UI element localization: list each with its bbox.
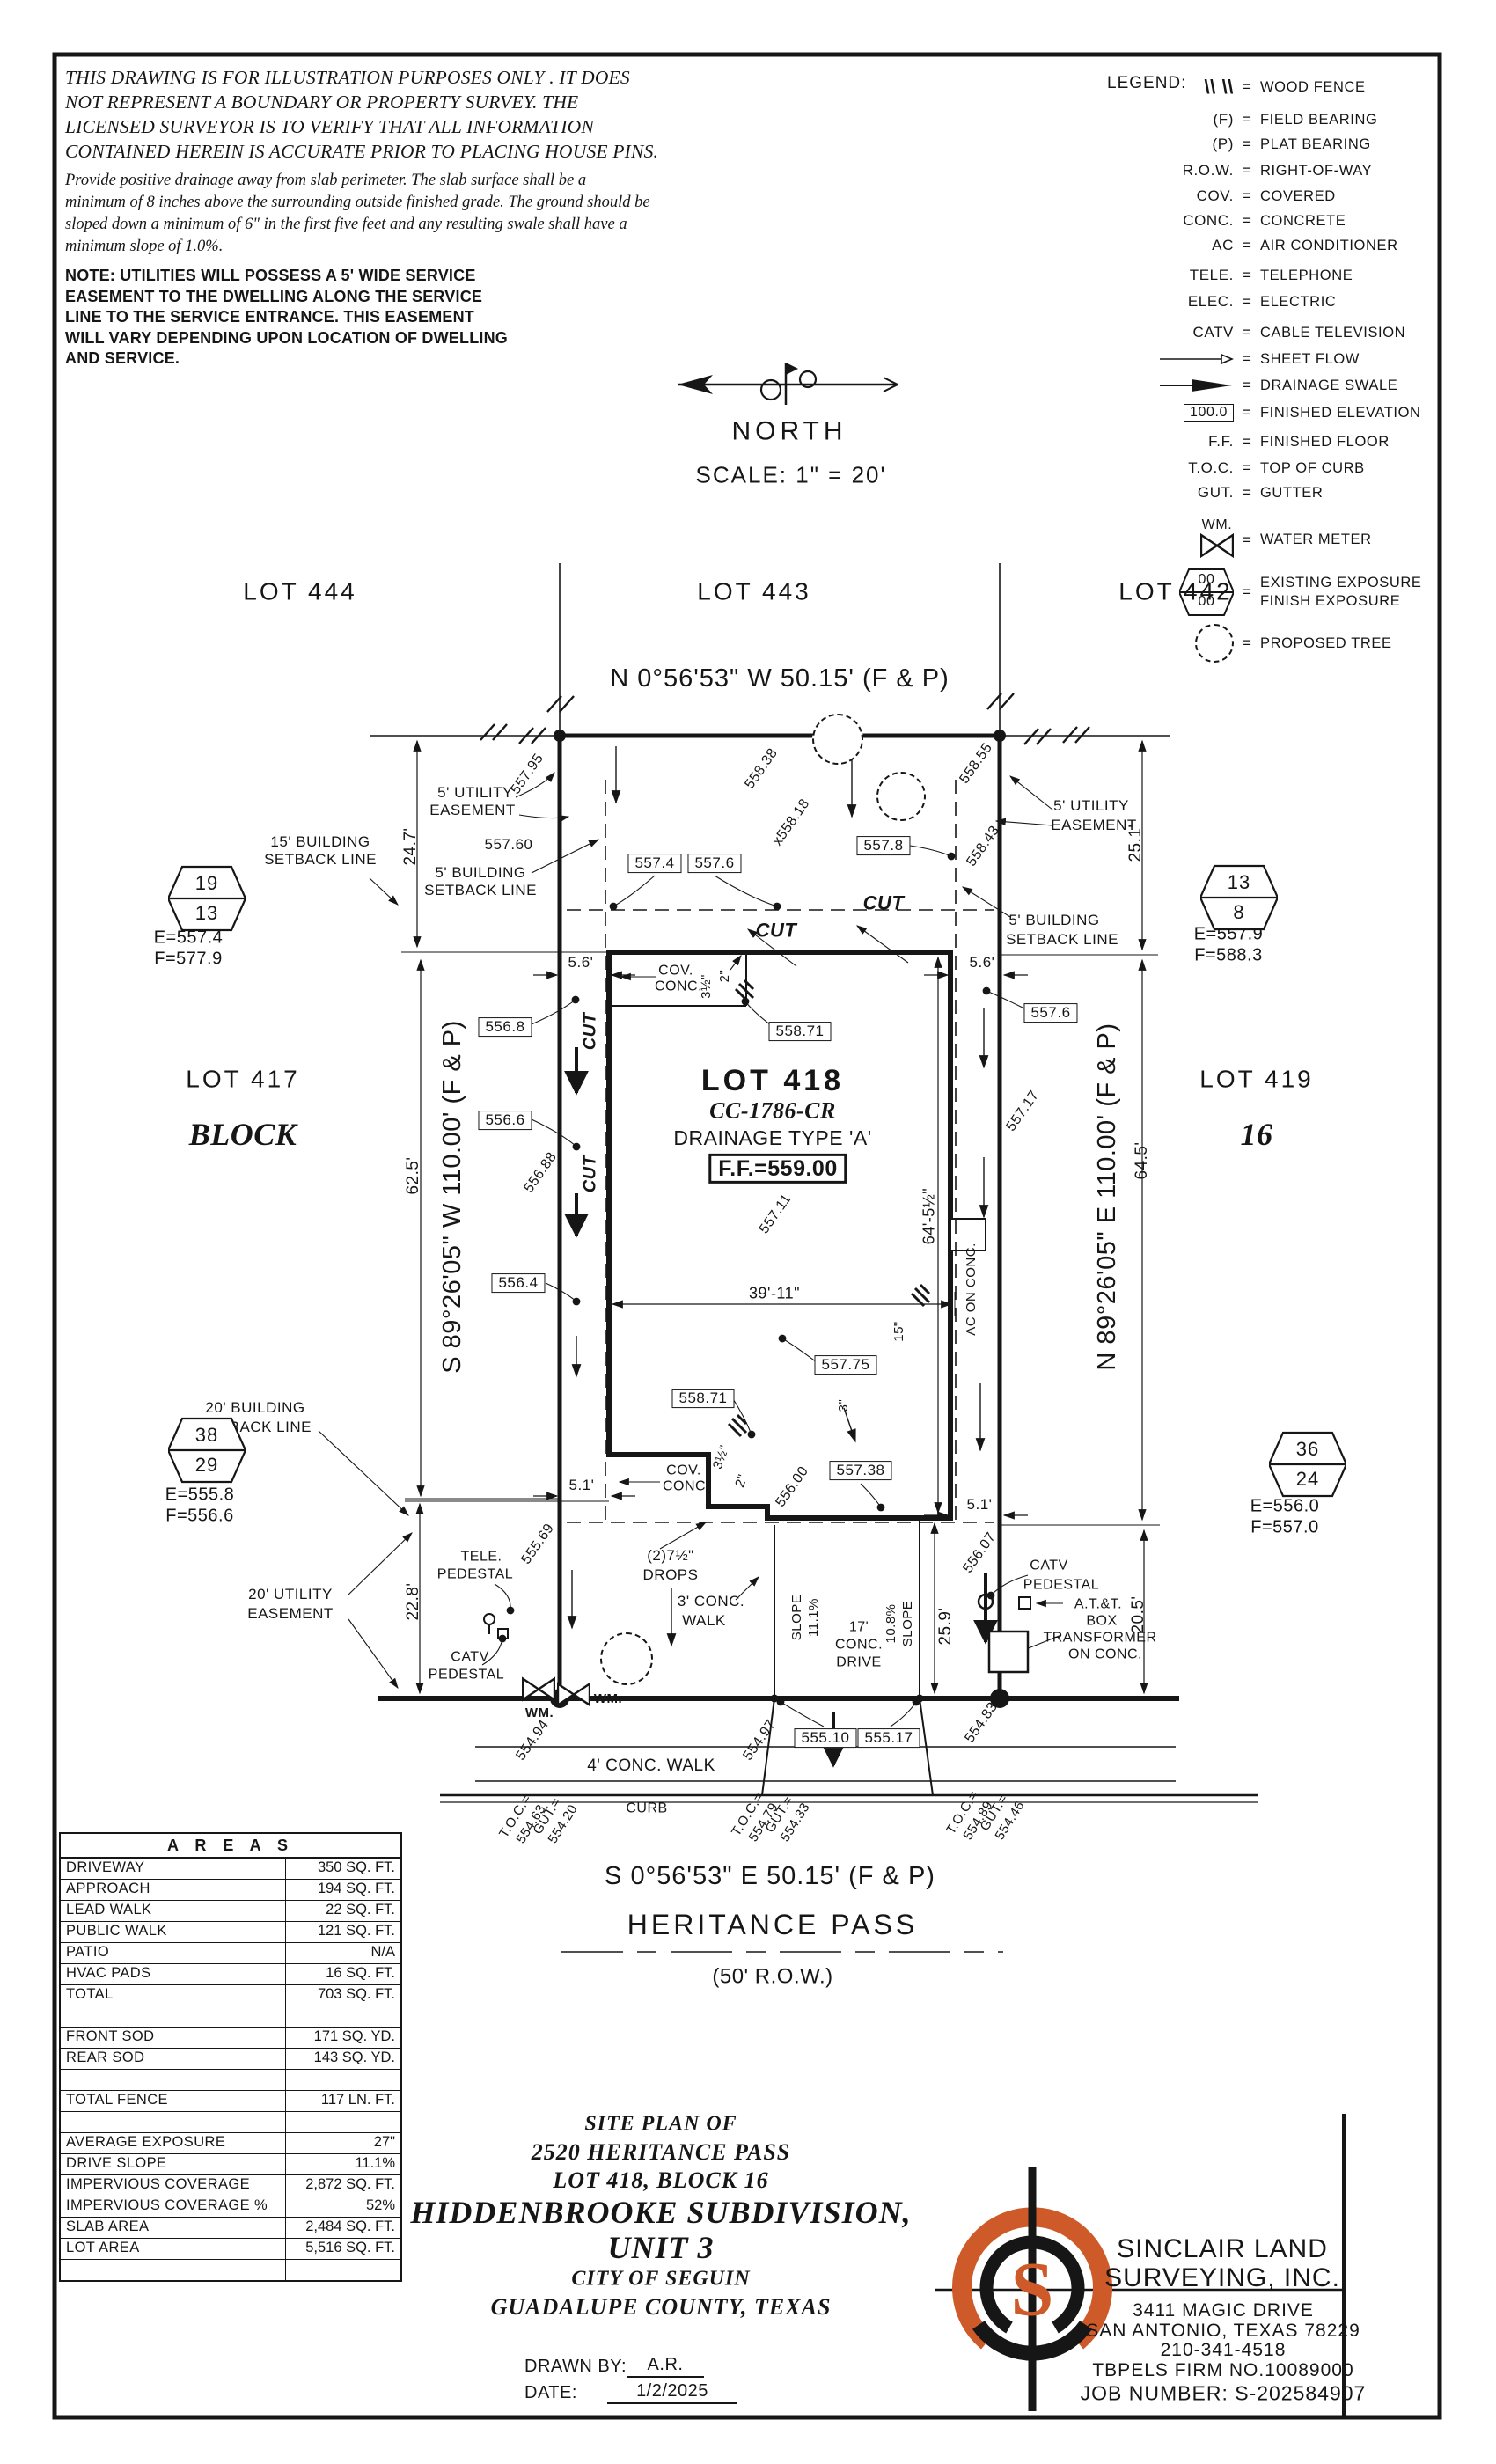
- plan-label: 22.8': [405, 1582, 422, 1620]
- legend-row: R.O.W.=RIGHT-OF-WAY: [1102, 162, 1447, 180]
- legend-equals: =: [1234, 634, 1260, 652]
- proposed-tree-icon: [1102, 624, 1234, 663]
- legend-equals: =: [1234, 237, 1260, 254]
- plan-label: SLOPE: [901, 1601, 915, 1647]
- areas-row-label: LEAD WALK: [61, 1901, 285, 1921]
- areas-table-title: A R E A S: [61, 1834, 400, 1859]
- disclaimer-line: minimum slope of 1.0%.: [65, 236, 658, 258]
- plan-label: (2)7½": [647, 1548, 693, 1564]
- legend-label: ELECTRIC: [1260, 293, 1447, 312]
- legend-symbol: (F): [1102, 111, 1234, 128]
- plan-label: WM.: [594, 1692, 622, 1706]
- lot-419-label: LOT 419: [1199, 1066, 1313, 1091]
- finished-elevation-icon: 100.0: [1102, 404, 1234, 422]
- date-value: 1/2/2025: [607, 2381, 737, 2404]
- plan-label: SLOPE: [790, 1595, 804, 1641]
- areas-table-row: [61, 2112, 400, 2133]
- legend-label: FINISHED ELEVATION: [1260, 404, 1447, 422]
- water-meter-icon: [557, 1683, 590, 1712]
- front-bearing-label: S 0°56'53" E 50.15' (F & P): [605, 1863, 935, 1889]
- north-arrow-icon: [678, 363, 898, 405]
- plan-label: PEDESTAL: [429, 1668, 504, 1683]
- proposed-tree-icon: [876, 772, 926, 821]
- legend-equals: =: [1234, 212, 1260, 230]
- legend-symbol: T.O.C.: [1102, 459, 1234, 477]
- legend-symbol: CATV: [1102, 324, 1234, 341]
- plan-label: CONC.: [655, 980, 702, 995]
- lot-417-label: LOT 417: [186, 1066, 299, 1091]
- disclaimer-line: LINE TO THE SERVICE ENTRANCE. THIS EASEM…: [65, 307, 658, 328]
- exposure-marker: 138: [1200, 864, 1278, 931]
- legend-symbol: TELE.: [1102, 267, 1234, 284]
- plan-label: SETBACK LINE: [264, 852, 377, 868]
- firm-tbpels: TBPELS FIRM NO.10089000: [1092, 2360, 1353, 2381]
- existing-exposure-value: 19: [168, 872, 246, 895]
- areas-row-value: 350 SQ. FT.: [285, 1859, 400, 1879]
- legend-equals: =: [1234, 484, 1260, 502]
- plan-label: 64.5': [1133, 1141, 1151, 1179]
- disclaimer-paragraph: THIS DRAWING IS FOR ILLUSTRATION PURPOSE…: [65, 65, 658, 164]
- drawn-by-label: DRAWN BY:: [524, 2357, 627, 2377]
- areas-row-label: [61, 2070, 285, 2090]
- plan-label: CONC.: [663, 1480, 710, 1495]
- plan-label: 557.4: [627, 854, 681, 873]
- plan-label: 5.1': [569, 1478, 595, 1493]
- areas-row-label: [61, 2260, 285, 2280]
- plan-label: 5.6': [970, 955, 995, 971]
- areas-row-label: LOT AREA: [61, 2239, 285, 2259]
- plan-label: 557.38: [830, 1461, 892, 1480]
- areas-row-label: PATIO: [61, 1943, 285, 1963]
- scale-label: SCALE: 1" = 20': [696, 463, 887, 487]
- legend-equals: =: [1234, 459, 1260, 477]
- legend-equals: =: [1234, 433, 1260, 451]
- legend-label: PLAT BEARING: [1260, 136, 1447, 154]
- exposure-marker: 3624: [1269, 1431, 1346, 1498]
- block-16-label: 16: [1241, 1118, 1273, 1152]
- public-walk-label: 4' CONC. WALK: [587, 1757, 715, 1775]
- title-block-line: 2520 HERITANCE PASS: [532, 2139, 791, 2166]
- lot-418-label: LOT 418: [701, 1066, 844, 1097]
- east-bearing-label: N 89°26'05" E 110.00' (F & P): [1094, 1023, 1120, 1370]
- plan-label: ON CONC.: [1068, 1648, 1142, 1663]
- drainage-note: Provide positive drainage away from slab…: [65, 170, 658, 258]
- plan-label: 2": [718, 970, 732, 983]
- site-plan-sheet: THIS DRAWING IS FOR ILLUSTRATION PURPOSE…: [0, 0, 1496, 2464]
- plan-label: E=556.0: [1250, 1498, 1320, 1516]
- plan-label: 20.5': [1130, 1595, 1148, 1633]
- plan-label: AC ON CONC.: [964, 1243, 979, 1336]
- title-block-line: LOT 418, BLOCK 16: [553, 2167, 768, 2194]
- legend-equals: =: [1234, 111, 1260, 128]
- plan-label: 11.1%: [807, 1598, 821, 1637]
- disclaimer-line: Provide positive drainage away from slab…: [65, 170, 658, 192]
- west-bearing-label: S 89°26'05" W 110.00' (F & P): [439, 1020, 466, 1374]
- areas-row-value: 121 SQ. FT.: [285, 1922, 400, 1942]
- legend-equals: =: [1234, 377, 1260, 394]
- legend-label: WOOD FENCE: [1260, 78, 1447, 97]
- areas-row-label: TOTAL FENCE: [61, 2091, 285, 2111]
- areas-table-row: IMPERVIOUS COVERAGE %52%: [61, 2196, 400, 2218]
- plan-label: SETBACK LINE: [424, 883, 537, 898]
- plan-label: DROPS: [643, 1567, 699, 1583]
- wood-fence-icon: \\ \\: [1102, 76, 1234, 99]
- legend-symbol: (P): [1102, 136, 1234, 153]
- legend-row: ELEC.=ELECTRIC: [1102, 293, 1447, 312]
- legend-symbol: ELEC.: [1102, 293, 1234, 311]
- legend-label: CABLE TELEVISION: [1260, 324, 1447, 342]
- plan-label: 5' BUILDING: [435, 865, 525, 881]
- plan-label: 5' BUILDING: [1008, 913, 1099, 928]
- areas-row-label: DRIVEWAY: [61, 1859, 285, 1879]
- plan-label: 15' BUILDING: [270, 834, 370, 850]
- plan-label: COV.: [666, 1464, 701, 1479]
- title-block-line: UNIT 3: [608, 2229, 715, 2266]
- legend-label: COVERED: [1260, 187, 1447, 206]
- legend-label: DRAINAGE SWALE: [1260, 377, 1447, 395]
- areas-row-label: AVERAGE EXPOSURE: [61, 2133, 285, 2153]
- legend-label: TOP OF CURB: [1260, 459, 1447, 478]
- title-block-line: SITE PLAN OF: [584, 2113, 737, 2137]
- plan-label: 5' UTILITY: [1053, 798, 1129, 814]
- areas-table-row: REAR SOD143 SQ. YD.: [61, 2049, 400, 2070]
- exposure-marker: 1913: [168, 865, 246, 932]
- water-meter-icon: WM.: [1102, 517, 1234, 562]
- areas-row-value: 143 SQ. YD.: [285, 2049, 400, 2069]
- legend-label: WATER METER: [1260, 531, 1447, 549]
- date-label: DATE:: [524, 2383, 577, 2403]
- areas-row-value: 117 LN. FT.: [285, 2091, 400, 2111]
- plan-label: 20' BUILDING: [205, 1400, 304, 1416]
- legend-row: TELE.=TELEPHONE: [1102, 267, 1447, 285]
- finish-exposure-value: 29: [168, 1454, 246, 1477]
- disclaimer-line: THIS DRAWING IS FOR ILLUSTRATION PURPOSE…: [65, 65, 658, 90]
- areas-table-row: APPROACH194 SQ. FT.: [61, 1880, 400, 1901]
- plan-label: CONC.: [835, 1639, 883, 1654]
- north-label: NORTH: [731, 417, 847, 445]
- finished-elevation-box: 100.0: [1184, 404, 1234, 422]
- plan-label: EASEMENT: [247, 1606, 334, 1622]
- areas-table-row: TOTAL703 SQ. FT.: [61, 1985, 400, 2006]
- plan-label: CUT: [582, 1155, 600, 1193]
- legend-equals: =: [1234, 293, 1260, 311]
- areas-row-value: 703 SQ. FT.: [285, 1985, 400, 2006]
- legend-row: AC=AIR CONDITIONER: [1102, 237, 1447, 255]
- legend-row: CATV=CABLE TELEVISION: [1102, 324, 1447, 342]
- areas-table-row: TOTAL FENCE117 LN. FT.: [61, 2091, 400, 2112]
- lot-444-label: LOT 444: [243, 578, 356, 604]
- existing-exposure-value: 36: [1269, 1438, 1346, 1461]
- proposed-tree-icon: [600, 1632, 653, 1685]
- areas-row-value: 5,516 SQ. FT.: [285, 2239, 400, 2259]
- plan-label: 25.1': [1127, 824, 1145, 862]
- firm-name-1: SINCLAIR LAND: [1117, 2234, 1328, 2264]
- rear-bearing-label: N 0°56'53" W 50.15' (F & P): [610, 665, 950, 692]
- drawn-by-value: A.R.: [627, 2355, 704, 2378]
- plan-label: TELE.: [461, 1551, 502, 1566]
- legend-row: CONC.=CONCRETE: [1102, 212, 1447, 231]
- legend-row: =DRAINAGE SWALE: [1102, 377, 1447, 395]
- areas-table-row: HVAC PADS16 SQ. FT.: [61, 1964, 400, 1985]
- legend-symbol: COV.: [1102, 187, 1234, 205]
- legend-label: AIR CONDITIONER: [1260, 237, 1447, 255]
- plan-label: 555.10: [795, 1728, 857, 1748]
- areas-table-row: IMPERVIOUS COVERAGE2,872 SQ. FT.: [61, 2175, 400, 2196]
- firm-address-1: 3411 MAGIC DRIVE: [1133, 2300, 1314, 2321]
- curb-label: CURB: [626, 1802, 667, 1817]
- plan-label: 3": [837, 1399, 851, 1412]
- lot-442-label: LOT 442: [1118, 578, 1232, 604]
- existing-exposure-value: 13: [1200, 871, 1278, 894]
- legend-label: CONCRETE: [1260, 212, 1447, 231]
- plan-label: 20' UTILITY: [248, 1587, 333, 1602]
- areas-table-row: [61, 2260, 400, 2280]
- plan-label: 25.9': [937, 1607, 955, 1645]
- plan-label: 64'-5½": [921, 1188, 938, 1244]
- legend-row: COV.=COVERED: [1102, 187, 1447, 206]
- plan-label: PEDESTAL: [437, 1568, 513, 1583]
- plan-label: 557.6: [687, 854, 741, 873]
- legend-label: FINISHED FLOOR: [1260, 433, 1447, 451]
- plan-label: 557.60: [485, 837, 533, 853]
- areas-row-value: 2,872 SQ. FT.: [285, 2175, 400, 2196]
- disclaimer-line: minimum of 8 inches above the surroundin…: [65, 192, 658, 214]
- legend-label: SHEET FLOW: [1260, 350, 1447, 369]
- areas-row-value: 22 SQ. FT.: [285, 1901, 400, 1921]
- legend-equals: =: [1234, 350, 1260, 368]
- disclaimer-line: sloped down a minimum of 6" in the first…: [65, 214, 658, 236]
- firm-name-2: SURVEYING, INC.: [1104, 2263, 1340, 2293]
- finish-exposure-value: 13: [168, 902, 246, 925]
- legend-row: (P)=PLAT BEARING: [1102, 136, 1447, 154]
- areas-row-label: HVAC PADS: [61, 1964, 285, 1984]
- plan-label: CATV: [1030, 1559, 1067, 1574]
- legend-equals: =: [1234, 532, 1260, 549]
- drainage-type-label: DRAINAGE TYPE 'A': [673, 1127, 871, 1148]
- disclaimer-line: CONTAINED HEREIN IS ACCURATE PRIOR TO PL…: [65, 139, 658, 164]
- disclaimer-line: NOTE: UTILITIES WILL POSSESS A 5' WIDE S…: [65, 266, 658, 287]
- plan-label: 558.71: [672, 1389, 735, 1408]
- areas-row-label: [61, 2112, 285, 2132]
- areas-row-label: PUBLIC WALK: [61, 1922, 285, 1942]
- finish-exposure-value: 8: [1200, 901, 1278, 924]
- legend-row: 100.0=FINISHED ELEVATION: [1102, 404, 1447, 422]
- areas-row-label: IMPERVIOUS COVERAGE: [61, 2175, 285, 2196]
- transformer-pad: [989, 1632, 1028, 1672]
- areas-table-row: LOT AREA5,516 SQ. FT.: [61, 2239, 400, 2260]
- sheet-flow-icon: [1102, 353, 1234, 365]
- legend-row: GUT.=GUTTER: [1102, 484, 1447, 502]
- plat-ref-label: CC-1786-CR: [709, 1098, 836, 1122]
- finish-exposure-value: 24: [1269, 1468, 1346, 1491]
- plan-label: CUT: [582, 1013, 600, 1051]
- plan-label: 3' CONC.: [678, 1594, 744, 1610]
- plan-label: CUT: [756, 920, 797, 940]
- plan-label: 555.17: [858, 1728, 920, 1748]
- legend-symbol: CONC.: [1102, 212, 1234, 230]
- legend-label: GUTTER: [1260, 484, 1447, 502]
- plan-label: 62.5': [405, 1156, 422, 1194]
- plan-label: 24.7': [402, 827, 420, 865]
- plan-label: 39'-11": [749, 1286, 800, 1302]
- title-block-line: CITY OF SEGUIN: [571, 2268, 750, 2292]
- plan-label: 5' UTILITY: [437, 785, 513, 801]
- plan-label: A.T.&T.: [1074, 1598, 1122, 1613]
- plan-label: 3½": [700, 974, 714, 999]
- legend-row: T.O.C.=TOP OF CURB: [1102, 459, 1447, 478]
- areas-table-row: PATION/A: [61, 1943, 400, 1964]
- plan-label: 558.71: [769, 1022, 832, 1041]
- areas-row-value: [285, 2260, 400, 2280]
- areas-table-row: PUBLIC WALK121 SQ. FT.: [61, 1922, 400, 1943]
- legend-row: =SHEET FLOW: [1102, 350, 1447, 369]
- plan-label: 557.75: [815, 1355, 877, 1375]
- plan-label: 10.8%: [884, 1603, 898, 1643]
- plan-label: 557.8: [856, 836, 910, 855]
- firm-logo-letter: S: [1011, 2246, 1054, 2335]
- areas-table-row: AVERAGE EXPOSURE27": [61, 2133, 400, 2154]
- title-block-line: GUADALUPE COUNTY, TEXAS: [491, 2294, 832, 2321]
- plan-label: 556.6: [478, 1111, 532, 1130]
- areas-row-value: 171 SQ. YD.: [285, 2028, 400, 2048]
- legend-equals: =: [1234, 583, 1260, 601]
- plan-label: 557.6: [1023, 1003, 1077, 1023]
- areas-row-label: [61, 2006, 285, 2027]
- disclaimer-line: AND SERVICE.: [65, 348, 658, 370]
- plan-label: 15": [892, 1321, 906, 1342]
- lot-443-label: LOT 443: [697, 578, 810, 604]
- areas-row-label: DRIVE SLOPE: [61, 2154, 285, 2174]
- plan-label: F=557.0: [1250, 1519, 1318, 1537]
- proposed-tree-icon: [812, 714, 863, 765]
- plan-label: 556.8: [478, 1017, 532, 1037]
- areas-row-label: APPROACH: [61, 1880, 285, 1900]
- areas-row-value: 2,484 SQ. FT.: [285, 2218, 400, 2238]
- plan-label: E=555.8: [165, 1486, 235, 1505]
- areas-row-label: TOTAL: [61, 1985, 285, 2006]
- legend-label: PROPOSED TREE: [1260, 634, 1447, 653]
- areas-table-row: LEAD WALK22 SQ. FT.: [61, 1901, 400, 1922]
- disclaimer: THIS DRAWING IS FOR ILLUSTRATION PURPOSE…: [65, 65, 658, 370]
- areas-table-row: DRIVE SLOPE11.1%: [61, 2154, 400, 2175]
- areas-row-label: REAR SOD: [61, 2049, 285, 2069]
- plan-label: CATV: [451, 1651, 488, 1666]
- plan-label: DRIVE: [836, 1656, 881, 1671]
- legend-row: (F)=FIELD BEARING: [1102, 111, 1447, 129]
- areas-row-value: 194 SQ. FT.: [285, 1880, 400, 1900]
- disclaimer-line: WILL VARY DEPENDING UPON LOCATION OF DWE…: [65, 328, 658, 349]
- areas-table-row: SLAB AREA2,484 SQ. FT.: [61, 2218, 400, 2239]
- legend-equals: =: [1234, 324, 1260, 341]
- plan-label: COV.: [658, 964, 693, 979]
- firm-address-2: SAN ANTONIO, TEXAS 78229: [1086, 2321, 1360, 2342]
- areas-table-row: DRIVEWAY350 SQ. FT.: [61, 1859, 400, 1880]
- areas-row-label: SLAB AREA: [61, 2218, 285, 2238]
- legend-equals: =: [1234, 267, 1260, 284]
- plan-label: 5.1': [967, 1497, 993, 1513]
- areas-table-row: [61, 2006, 400, 2028]
- plan-label: WALK: [682, 1613, 726, 1629]
- plan-label: EASEMENT: [1051, 818, 1137, 833]
- legend-equals: =: [1234, 187, 1260, 205]
- areas-row-value: 52%: [285, 2196, 400, 2217]
- areas-row-label: FRONT SOD: [61, 2028, 285, 2048]
- areas-row-value: [285, 2070, 400, 2090]
- plan-label: 5.6': [568, 955, 594, 971]
- legend-symbol: R.O.W.: [1102, 162, 1234, 180]
- areas-row-value: 16 SQ. FT.: [285, 1964, 400, 1984]
- disclaimer-line: EASEMENT TO THE DWELLING ALONG THE SERVI…: [65, 287, 658, 308]
- legend-symbol: AC: [1102, 237, 1234, 254]
- utility-note: NOTE: UTILITIES WILL POSSESS A 5' WIDE S…: [65, 266, 658, 370]
- legend-label: RIGHT-OF-WAY: [1260, 162, 1447, 180]
- title-block-line: HIDDENBROOKE SUBDIVISION,: [410, 2194, 911, 2231]
- exposure-marker: 3829: [168, 1417, 246, 1484]
- plan-label: EASEMENT: [429, 803, 516, 818]
- plan-label: F=556.6: [165, 1507, 233, 1526]
- areas-row-label: IMPERVIOUS COVERAGE %: [61, 2196, 285, 2217]
- areas-table-row: [61, 2070, 400, 2091]
- legend-equals: =: [1234, 404, 1260, 422]
- areas-row-value: N/A: [285, 1943, 400, 1963]
- finished-floor-label: F.F.=559.00: [708, 1154, 847, 1184]
- legend-equals: =: [1234, 162, 1260, 180]
- disclaimer-line: LICENSED SURVEYOR IS TO VERIFY THAT ALL …: [65, 114, 658, 139]
- areas-row-value: [285, 2006, 400, 2027]
- areas-row-value: [285, 2112, 400, 2132]
- plan-label: PEDESTAL: [1023, 1579, 1099, 1594]
- plan-label: CUT: [863, 892, 905, 913]
- disclaimer-line: NOT REPRESENT A BOUNDARY OR PROPERTY SUR…: [65, 90, 658, 114]
- legend-row: \\ \\=WOOD FENCE: [1102, 76, 1447, 99]
- drainage-swale-icon: [1102, 378, 1234, 392]
- legend-symbol: F.F.: [1102, 433, 1234, 451]
- legend-row: WM.=WATER METER: [1102, 517, 1447, 562]
- legend-label: EXISTING EXPOSUREFINISH EXPOSURE: [1260, 574, 1447, 610]
- legend-label: FIELD BEARING: [1260, 111, 1447, 129]
- row-label: (50' R.O.W.): [712, 1965, 832, 1987]
- legend-label: TELEPHONE: [1260, 267, 1447, 285]
- plan-label: F=577.9: [154, 950, 222, 969]
- firm-phone: 210-341-4518: [1161, 2340, 1287, 2361]
- plan-label: 556.4: [491, 1273, 545, 1293]
- firm-job-number: JOB NUMBER: S-202584907: [1081, 2382, 1367, 2406]
- plan-label: 17': [849, 1621, 869, 1636]
- legend-symbol: GUT.: [1102, 484, 1234, 502]
- legend-row: =PROPOSED TREE: [1102, 624, 1447, 663]
- areas-row-value: 11.1%: [285, 2154, 400, 2174]
- legend-equals: =: [1234, 78, 1260, 96]
- plan-label: SETBACK LINE: [1006, 932, 1118, 948]
- areas-table: A R E A S DRIVEWAY350 SQ. FT.APPROACH194…: [59, 1832, 402, 2282]
- areas-table-row: FRONT SOD171 SQ. YD.: [61, 2028, 400, 2049]
- street-name-label: HERITANCE PASS: [627, 1910, 918, 1940]
- plan-label: F=588.3: [1194, 947, 1262, 965]
- legend-row: F.F.=FINISHED FLOOR: [1102, 433, 1447, 451]
- existing-exposure-value: 38: [168, 1424, 246, 1447]
- plan-label: BOX: [1086, 1615, 1117, 1630]
- water-meter-icon: [522, 1677, 555, 1706]
- block-label: BLOCK: [189, 1118, 297, 1152]
- areas-row-value: 27": [285, 2133, 400, 2153]
- legend-equals: =: [1234, 136, 1260, 153]
